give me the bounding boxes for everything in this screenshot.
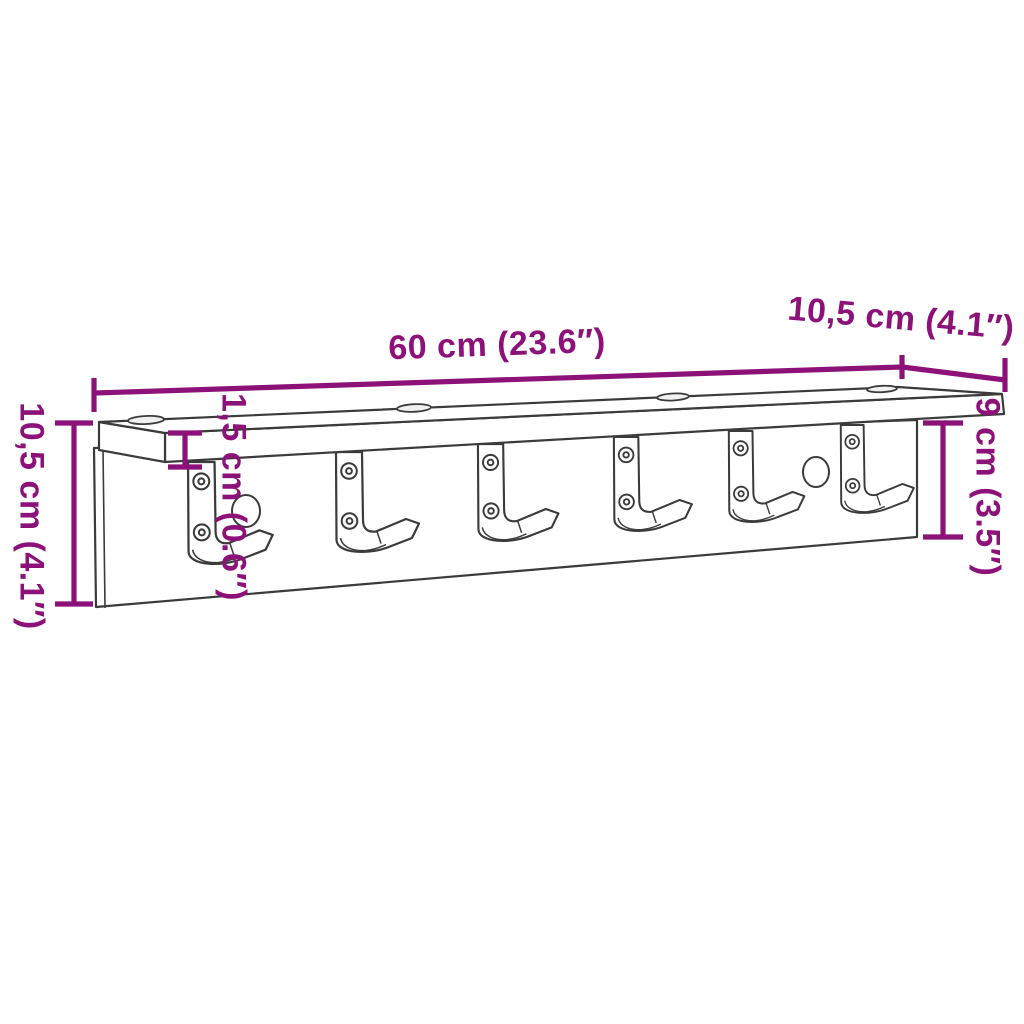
dimension-panel-height-line <box>923 423 963 537</box>
product-dimension-diagram: 60 cm (23.6″) 10,5 cm (4.1″) 10,5 cm (4.… <box>0 0 1024 1024</box>
dimension-panel-height-label: 9 cm (3.5″) <box>968 398 1007 577</box>
panel-hole-right <box>803 457 829 487</box>
coat-rack-drawing <box>0 0 1024 1024</box>
dimension-height-label: 10,5 cm (4.1″) <box>12 402 51 629</box>
dimension-width-label: 60 cm (23.6″) <box>388 322 607 369</box>
dimension-depth-line <box>902 358 1005 392</box>
dimension-height-line <box>55 423 93 604</box>
dimension-thickness-label: 1,5 cm (0.6″) <box>214 393 253 601</box>
